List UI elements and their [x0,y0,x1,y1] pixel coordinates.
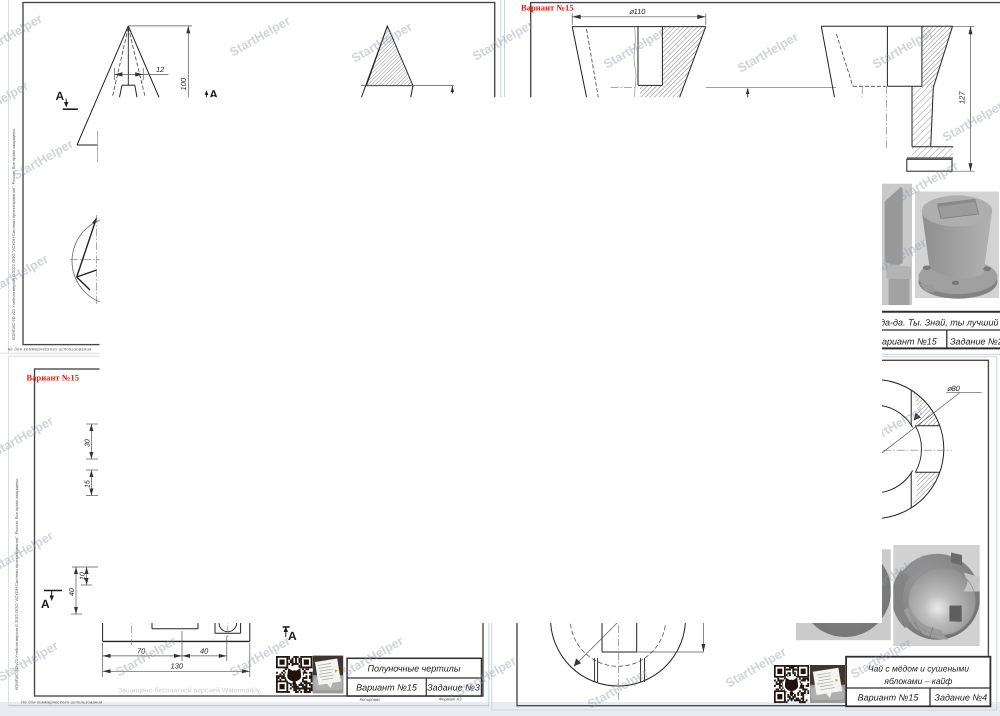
svg-text:Вариант №15: Вариант №15 [858,693,920,703]
svg-text:40: 40 [69,588,76,596]
svg-text:Задание №2: Задание №2 [950,337,1000,347]
svg-text:КОМПАС-3D v21 Учебная версия ©: КОМПАС-3D v21 Учебная версия © 2022 ООО … [11,128,16,340]
svg-text:Вариант №15: Вариант №15 [26,373,79,383]
svg-text:127: 127 [958,91,967,104]
svg-text:Вариант №15: Вариант №15 [876,337,938,347]
svg-text:Не для коммерческого использов: Не для коммерческого использования [21,700,103,705]
svg-text:Защищено бесплатной версией Wa: Защищено бесплатной версией Watermarkly. [118,687,262,695]
svg-text:не для коммерческого использов: не для коммерческого использования [8,347,92,352]
svg-text:Вариант №15: Вариант №15 [356,683,418,693]
svg-text:⌀110: ⌀110 [629,7,646,16]
svg-text:15: 15 [85,480,92,488]
svg-text:100: 100 [179,77,188,90]
svg-text:да-да. Ты. Знай, ты лучший (ая: да-да. Ты. Знай, ты лучший (ая [880,318,1000,328]
svg-text:яблоками – кайф: яблоками – кайф [883,676,952,686]
svg-text:Копировал: Копировал [360,697,381,702]
svg-text:⌀80: ⌀80 [947,384,961,393]
svg-text:130: 130 [171,662,184,671]
svg-text:А: А [41,597,50,611]
svg-text:10: 10 [80,572,87,580]
svg-text:30: 30 [85,439,92,447]
svg-text:Задание №4: Задание №4 [934,693,987,703]
svg-text:Вариант №15: Вариант №15 [521,3,574,13]
svg-text:Полуночные чертилы: Полуночные чертилы [368,664,461,674]
svg-text:40: 40 [200,647,209,656]
svg-text:А: А [56,89,65,103]
svg-text:12: 12 [156,65,165,74]
